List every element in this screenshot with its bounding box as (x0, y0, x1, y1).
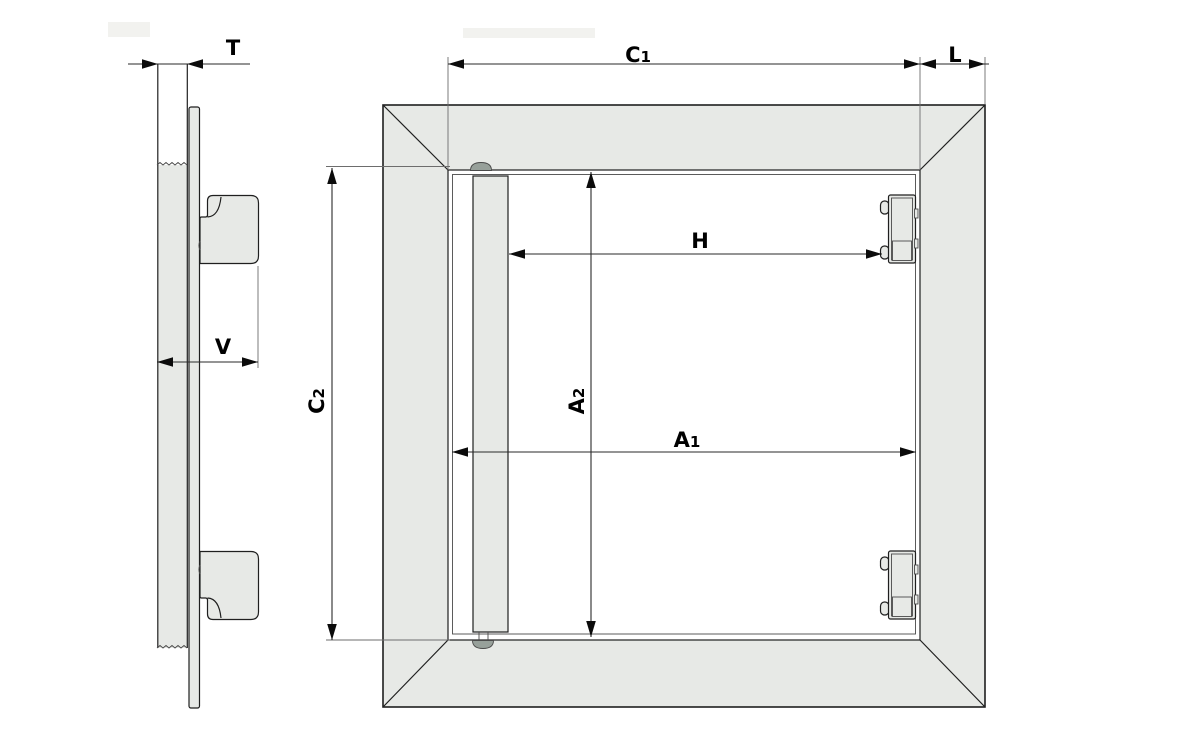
dim-t: T (128, 36, 250, 69)
dim-c1-arrow-left (448, 59, 464, 69)
scan-artifact (463, 28, 595, 38)
dim-c1-arrow-right (904, 59, 920, 69)
latch-bottom-body (200, 552, 259, 620)
dim-c2-label: C2 (305, 388, 329, 414)
panel-dimension-drawing: T V (0, 0, 1196, 752)
scan-artifact (108, 22, 150, 37)
wall-break-top (157, 163, 187, 166)
hinge-profile-bar (473, 176, 508, 632)
dim-l: L (920, 43, 989, 104)
latch-tick (915, 209, 919, 218)
latch-tick (915, 565, 919, 574)
latch-block-top-side (199, 196, 259, 264)
dim-h-label: H (691, 229, 709, 253)
latch-tick (915, 239, 919, 248)
dim-l-label: L (948, 43, 961, 67)
hinge-pin-bottom (473, 641, 494, 649)
dim-c2-arrow-top (327, 168, 337, 184)
latch-bolt (881, 201, 890, 214)
dim-l-arrow-left (920, 59, 936, 69)
dim-c1-label: C1 (625, 43, 651, 67)
technical-drawing-page: T V (0, 0, 1196, 752)
latch-bolt (881, 246, 890, 259)
latch-bolt (881, 557, 890, 570)
side-section-view: T V (128, 36, 259, 708)
door-panel-side (189, 107, 200, 708)
latch-bolt (881, 602, 890, 615)
wall-section (158, 165, 188, 648)
dim-t-arrow-left (142, 59, 158, 69)
latch-plate (893, 597, 912, 617)
door-leaf (453, 175, 916, 635)
latch-block-bottom-side (199, 552, 259, 620)
dim-l-arrow-right (969, 59, 985, 69)
dim-v-label: V (215, 335, 232, 359)
latch-plate (893, 241, 912, 261)
dim-t-arrow-right (187, 59, 203, 69)
front-view: C1 L C2 A2 (305, 43, 989, 707)
hinge-pin-top (471, 163, 492, 171)
latch-top-body (200, 196, 259, 264)
latch-tick (915, 595, 919, 604)
dim-v-arrow-right (242, 357, 258, 367)
dim-c2-arrow-bottom (327, 624, 337, 640)
dim-t-label: T (226, 36, 241, 60)
